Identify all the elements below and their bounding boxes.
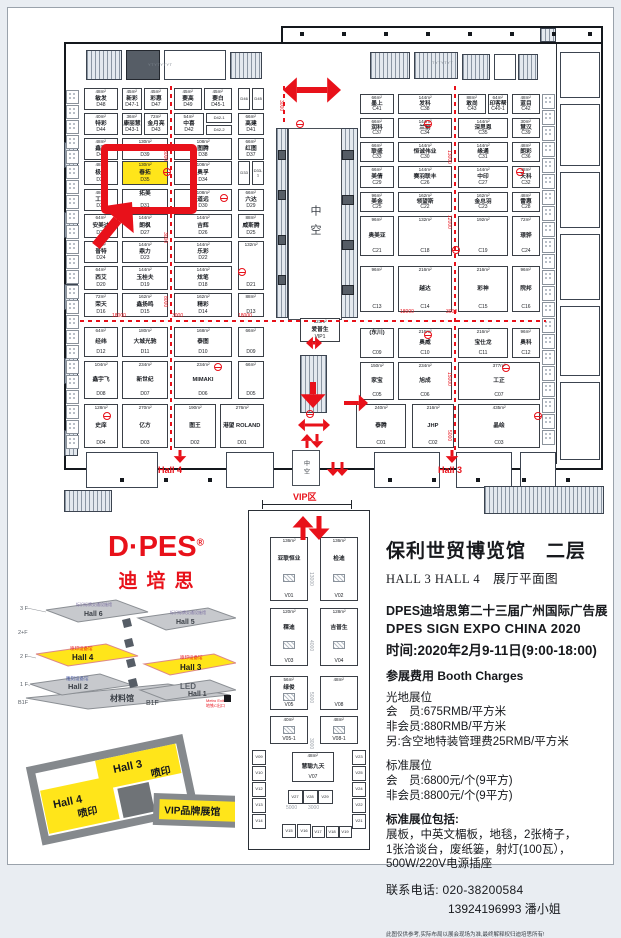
level-1f: 1 F <box>20 682 29 688</box>
hall2-sub: 雕刻设备馆 <box>66 675 89 682</box>
wall-booth-cell <box>66 180 79 194</box>
venue-title: 保利世贸博览馆 二层 <box>386 536 616 563</box>
wall-booth-cell <box>66 375 79 389</box>
atrium-void: 中空 <box>288 128 342 320</box>
dimension-label: 3000 <box>172 314 183 319</box>
booth-V15: V15 <box>282 824 296 838</box>
wall-booth-cell <box>66 300 79 314</box>
wall-booth-cell <box>542 286 555 301</box>
structural-column-dot <box>510 32 514 36</box>
structural-column-dot <box>468 32 472 36</box>
booth-C09: (东川)C09 <box>360 328 394 358</box>
booth-C35: 144m²深思恩C35 <box>458 118 508 138</box>
dimension-label: 5000 <box>286 806 297 811</box>
aisle-dashed-left <box>170 86 172 454</box>
structure-block <box>278 150 286 160</box>
aisle-dashed-right <box>454 86 456 454</box>
hall4-name: Hall 4 <box>72 653 94 662</box>
b1f-code: B1F <box>146 700 159 707</box>
structural-column-dot <box>388 478 392 482</box>
booth-C14: 216m²越达C14 <box>398 266 452 312</box>
dimension-label: 12000 <box>446 215 451 229</box>
structural-column-dot <box>300 32 304 36</box>
booth-C06: 234m²旭成C06 <box>398 362 452 400</box>
structure-block <box>494 54 516 80</box>
booth-V27: V27 <box>288 790 303 804</box>
booth-D12: 64m²经纬D12 <box>84 327 118 357</box>
structure-block <box>414 52 458 79</box>
vip-dimension-line <box>262 504 352 505</box>
booth-C13: 96m²C13 <box>360 266 394 312</box>
booth-D09: 66m²D09 <box>238 327 264 357</box>
wall-booth-cell <box>542 398 555 413</box>
booth-charges-title: 参展费用 Booth Charges <box>386 667 616 684</box>
booth-V05: 56m²绿俊V05 <box>270 676 308 710</box>
wall-booth-cell <box>66 270 79 284</box>
booth-C21: 96m²奥美亚C21 <box>360 216 394 256</box>
structural-column-dot <box>588 32 592 36</box>
wall-booth-cell <box>542 334 555 349</box>
structure-block <box>342 240 354 250</box>
dimension-label: 3000 <box>446 310 457 315</box>
booth-V29: V29 <box>318 790 333 804</box>
atrium-void-lower: 中空 <box>292 450 320 486</box>
booth-D11: 180m²大城光驰D11 <box>122 327 168 357</box>
booth-D43-1: 36m²康丽慧D43-1 <box>122 113 142 135</box>
structural-column-dot <box>384 32 388 36</box>
structural-column-dot <box>522 478 526 482</box>
structure-block <box>462 54 490 80</box>
wall-booth-cell <box>66 255 79 269</box>
wall-booth-cell <box>542 254 555 269</box>
booth-D45-1: 45m²要白D45-1 <box>204 88 232 110</box>
wall-booth-cell <box>542 94 555 109</box>
booth-D23: 144m²鼎力D23 <box>122 241 168 263</box>
structure-block <box>518 54 538 80</box>
fire-point-icon <box>516 168 524 176</box>
wall-booth-cell <box>66 420 79 434</box>
structure-block <box>342 195 354 205</box>
booth-D43: 72m²金月亮D43 <box>144 113 168 135</box>
booth-D41: 66m²高建D41 <box>238 113 264 135</box>
wall-booth-cell <box>542 414 555 429</box>
hall2-name: Hall 2 <box>68 682 88 691</box>
booth-D20: 64m²西艾D20 <box>84 266 118 290</box>
wall-booth-cell <box>542 238 555 253</box>
booth-V07: 48m²慧聪九天V07 <box>292 752 334 782</box>
structural-column-dot <box>476 478 480 482</box>
hall-subtitle: HALL 3 HALL 4 展厅平面图 <box>386 568 616 587</box>
structure-block <box>278 275 286 285</box>
structural-column-dot <box>432 478 436 482</box>
booth-D42-2: D42-2 <box>206 125 232 135</box>
raw-space-extra-fee: 另:含空地特装管理费25RMB/平方米 <box>386 735 616 750</box>
level-2plusf: 2+F <box>18 630 28 636</box>
hall1-led: LED <box>180 682 196 691</box>
structure-block <box>164 50 226 80</box>
structural-column-dot <box>208 478 212 482</box>
booth-D33-1: D33-1 <box>252 161 264 185</box>
expo-name-en: DPES SIGN EXPO CHINA 2020 <box>386 621 616 636</box>
fire-point-icon <box>306 410 314 418</box>
level-3f: 3 F <box>20 606 29 612</box>
standard-member-price: 会 员:6800元/个(9平方) <box>386 774 616 789</box>
disclaimer-footnote: 此图仅供参考,实际布局以展会现场为准,最终解释权归迪培思所有! <box>386 930 616 938</box>
wall-booth-cell <box>66 330 79 344</box>
metro-cube-icon <box>224 695 231 702</box>
booth-C29: 66m²美倩C29 <box>360 166 394 188</box>
aisle-dashed-horizontal <box>80 320 546 322</box>
wall-booth-cell <box>66 195 79 209</box>
booth-D47-1: 45m²新彩D47-1 <box>122 88 142 110</box>
expo-name-cn: DPES迪培思第二十三届广州国际广告展 <box>386 600 616 619</box>
wall-booth-cell <box>66 210 79 224</box>
wall-booth-cell <box>66 165 79 179</box>
structure-block <box>300 355 327 413</box>
wall-booth-cell <box>542 206 555 221</box>
right-corridor-wall <box>556 44 557 464</box>
booth-D46: D46 <box>238 88 250 110</box>
booth-V09: V09 <box>252 750 266 765</box>
fire-point-icon <box>424 120 432 128</box>
booth-D42-1: D42-1 <box>206 113 232 123</box>
wall-booth-cell <box>542 270 555 285</box>
wall-booth-cell <box>542 174 555 189</box>
raw-space-nonmember-price: 非会员:880RMB/平方米 <box>386 720 616 735</box>
booth-C31: 144m²缘通C31 <box>458 142 508 162</box>
dimension-label: 5000 <box>446 430 451 441</box>
brand-logo: D·PES® 迪培思 <box>86 531 226 593</box>
hall6-sub: 标识标牌交通设施馆 <box>76 601 112 607</box>
structure-block <box>230 52 262 79</box>
fire-point-icon <box>534 412 542 420</box>
wall-booth-cell <box>542 222 555 237</box>
dimension-label: 3000 <box>278 100 283 111</box>
booth-D01: 276m²港望 ROLANDD01 <box>220 404 264 448</box>
contact-phone: 联系电话: 020-38200584 <box>386 881 616 898</box>
booth-D45: D45 <box>252 88 264 110</box>
atrium-label: 中空 <box>307 205 323 243</box>
booth-D47: 45m²彩惠D47 <box>144 88 168 110</box>
booth-D02: 190m²图王D02 <box>174 404 216 448</box>
structure-block <box>560 104 600 166</box>
booth-C07: 377m²工正C07 <box>458 362 540 400</box>
hall4-sub: 喷印设备馆 <box>70 645 93 652</box>
fire-point-icon <box>452 246 460 254</box>
booth-C43: 88m²敢尚C43 <box>458 94 486 114</box>
booth-D48: 48m²敏发D48 <box>84 88 118 110</box>
info-panel: 保利世贸博览馆 二层 HALL 3 HALL 4 展厅平面图 DPES迪培思第二… <box>386 536 616 938</box>
booth-D42: 54m²中喜D42 <box>174 113 204 135</box>
wall-booth-cell <box>542 366 555 381</box>
booth-D06: 234m²MIMAKID06 <box>174 361 232 399</box>
booth-V24: V24 <box>352 782 366 797</box>
b1f-name: 材料馆 <box>110 693 134 703</box>
structural-column-dot <box>120 478 124 482</box>
booth-D08: 104m²鑫宇飞D08 <box>84 361 118 399</box>
booth-V05-1: 40m²V05-1 <box>270 716 308 744</box>
structural-column-dot <box>342 32 346 36</box>
booth-V14: V14 <box>252 814 266 829</box>
wall-booth-cell <box>542 110 555 125</box>
wall-booth-cell <box>66 90 79 104</box>
legend-3d-levels: 材料馆 B1F 雕刻设备馆 Hall 2 LED Hall 1 喷印设备馆 Ha… <box>18 592 236 712</box>
booth-D19: 144m²玉桂夫D19 <box>122 266 168 290</box>
booth-C25: 96m²美金C25 <box>360 192 394 212</box>
mini-map: VIP品牌展馆 Hall 3 喷印 Hall 4 喷印 <box>20 722 235 857</box>
wall-booth-cell <box>66 435 79 449</box>
hall3-name: Hall 3 <box>180 663 202 672</box>
booth-C38: 144m²发科C38 <box>398 94 452 114</box>
wall-booth-cell <box>542 126 555 141</box>
booth-V01: 136m²亚联恒业V01 <box>270 537 308 601</box>
booth-V28: V28 <box>303 790 318 804</box>
dimension-label: 15000 <box>446 372 451 386</box>
booth-C18: 132m²C18 <box>398 216 452 256</box>
fire-point-icon <box>502 364 510 372</box>
booth-D07: 234m²新世纪D07 <box>122 361 168 399</box>
booth-D18: 144m²炫笔D18 <box>174 266 232 290</box>
standard-booth-title: 标准展位 <box>386 759 616 774</box>
structure-block <box>560 234 600 300</box>
fire-point-icon <box>296 120 304 128</box>
dimension-label: 5000 <box>308 692 313 703</box>
booth-D28: 64m²安美达D28 <box>84 214 118 238</box>
booth-C41: 66m²墨上C41 <box>360 94 394 114</box>
atrium-lower-label: 中空 <box>302 460 311 476</box>
booth-C12: 96m²奥科C12 <box>512 328 540 358</box>
booth-V17: V17 <box>312 826 325 838</box>
booth-D10: 168m²泰图D10 <box>174 327 232 357</box>
structure-block <box>560 306 600 376</box>
booth-C24: 72m²璟骅C24 <box>512 216 540 256</box>
hall4-entrance-label: Hall 4 <box>158 466 182 475</box>
booth-C37: 66m²润科C37 <box>360 118 394 138</box>
hall5-sub: 标识标牌交通设施馆 <box>170 609 206 615</box>
booth-V08-1: 48m²V08-1 <box>320 716 358 744</box>
structure-block <box>86 50 122 80</box>
booth-C03: 435m²晶绘C03 <box>458 404 540 448</box>
structure-block <box>86 452 158 488</box>
fire-point-icon <box>220 194 228 202</box>
highlight-frame <box>101 144 197 214</box>
standard-includes-title: 标准展位包括: <box>386 813 616 828</box>
booth-C15: 216m²彩神C15 <box>458 266 508 312</box>
wall-booth-cell <box>66 405 79 419</box>
structure-block <box>484 486 604 514</box>
expo-datetime: 时间:2020年2月9-11日(9:00-18:00) <box>386 639 616 659</box>
booth-D44: 40m²特彩D44 <box>84 113 118 135</box>
booth-facility-icon <box>283 641 295 649</box>
structural-column-dot <box>552 32 556 36</box>
structure-block <box>560 382 600 460</box>
booth-D37: 66m²红图D37 <box>238 138 264 160</box>
wall-booth-cell <box>66 285 79 299</box>
booth-D03: 270m²亿方D03 <box>122 404 168 448</box>
booth-C23: 162m²金总羽C23 <box>458 192 508 212</box>
wall-booth-cell <box>542 302 555 317</box>
booth-V04: 128m²吉普生V04 <box>320 608 358 666</box>
dimension-label: 3000 <box>308 738 313 749</box>
booth-V19: V19 <box>339 826 352 838</box>
dimension-label: 18000 <box>112 314 126 319</box>
structure-block <box>456 452 512 488</box>
hall6-name: Hall 6 <box>84 611 103 618</box>
booth-facility-icon <box>333 574 345 582</box>
dimension-label: 8000 <box>162 296 167 307</box>
booth-C30: 144m²恒诚伟业C30 <box>398 142 452 162</box>
dimension-label: 4000 <box>308 640 313 651</box>
booth-facility-icon <box>283 574 295 582</box>
booth-C19: 192m²C19 <box>458 216 508 256</box>
level-2f: 2 F <box>20 654 29 660</box>
corridor-marking: TYTYTYT <box>432 60 453 65</box>
booth-C33: 66m²联盛C33 <box>360 142 394 162</box>
raw-space-title: 光地展位 <box>386 689 616 705</box>
wall-booth-cell <box>66 240 79 254</box>
booth-V18: V18 <box>326 826 339 838</box>
booth-V02: 136m²检迪V02 <box>320 537 358 601</box>
wall-booth-cell <box>66 120 79 134</box>
booth-V16: V16 <box>297 824 311 838</box>
standard-includes-3: 500W/220V电源插座 <box>386 857 616 872</box>
wall-booth-cell <box>66 360 79 374</box>
booth-C40-1: 64m²印客帮C40-1 <box>488 94 508 114</box>
booth-V10: V10 <box>252 766 266 781</box>
booth-V21: V21 <box>352 814 366 829</box>
scanned-floorplan-page: { "labels": { "hall4_entry": "Hall 4", "… <box>0 0 621 869</box>
vip-zone-label: VIP区 <box>293 493 317 502</box>
dimension-label: 3000 <box>308 806 319 811</box>
booth-D33: D33 <box>238 161 250 185</box>
booth-D22: 144m²乐彩D22 <box>174 241 232 263</box>
booth-facility-icon <box>333 726 345 734</box>
structure-block <box>560 52 600 98</box>
fire-point-icon <box>214 363 222 371</box>
booth-C27: 144m²中印C27 <box>458 166 508 188</box>
standard-nonmember-price: 非会员:8800元/个(9平方) <box>386 789 616 804</box>
corridor-marking: YTYTYTYT <box>148 62 172 67</box>
booth-V12: V12 <box>252 782 266 797</box>
wall-booth-cell <box>542 142 555 157</box>
structure-block <box>560 172 600 228</box>
wall-booth-cell <box>66 105 79 119</box>
booth-D04: 128m²史庠D04 <box>84 404 118 448</box>
booth-facility-icon <box>283 693 295 701</box>
wall-booth-cell <box>542 350 555 365</box>
structure-block <box>342 285 354 295</box>
booth-V03: 120m²稞迪V03 <box>270 608 308 666</box>
booth-D29: 66m²六达D29 <box>238 189 264 211</box>
booth-C16: 96m²院邦C16 <box>512 266 540 312</box>
wall-booth-cell <box>66 135 79 149</box>
booth-C36: 48m²朗彩C36 <box>512 142 540 162</box>
booth-C42: 48m²蓝目C42 <box>512 94 540 114</box>
registered-mark-icon: ® <box>197 537 204 548</box>
booth-V13: V13 <box>252 798 266 813</box>
dimension-label: 18000 <box>400 310 414 315</box>
wall-booth-cell <box>66 150 79 164</box>
structure-block <box>226 452 274 488</box>
structure-block <box>64 490 112 512</box>
structure-block <box>278 190 286 200</box>
dimension-label: 13000 <box>308 572 313 586</box>
contact-mobile: 13924196993 潘小姐 <box>448 900 616 917</box>
booth-D49: 45m²要高D49 <box>174 88 202 110</box>
booth-facility-icon <box>283 726 295 734</box>
structural-column-dot <box>164 478 168 482</box>
booth-C11: 216m²宝仕龙C11 <box>458 328 508 358</box>
structure-block <box>374 452 440 488</box>
booth-D26: 144m²吉辉D26 <box>174 214 232 238</box>
wall-booth-cell <box>66 225 79 239</box>
level-b1f: B1F <box>18 700 29 706</box>
hall3-entrance-label: Hall 3 <box>438 466 462 475</box>
booth-V08: 48m²V08 <box>320 676 358 710</box>
wall-booth-cell <box>66 390 79 404</box>
metro-exit-cn: 地铁C出口 <box>206 702 225 708</box>
booth-facility-icon <box>333 641 345 649</box>
booth-C05: 150m²家宝C05 <box>360 362 394 400</box>
wall-booth-cell <box>542 190 555 205</box>
fire-point-icon <box>424 331 432 339</box>
structural-column-dot <box>566 478 570 482</box>
booth-C39: 30m²慧汉C39 <box>512 118 540 138</box>
booth-C28: 48m²雷惠C28 <box>512 192 540 212</box>
wall-booth-cell <box>66 315 79 329</box>
raw-space-member-price: 会 员:675RMB/平方米 <box>386 705 616 720</box>
structure-block <box>370 52 410 79</box>
dimension-label: 13000 <box>446 150 451 164</box>
wall-booth-cell <box>542 382 555 397</box>
hall1-name: Hall 1 <box>188 691 207 698</box>
booth-C26: 144m²赛羽联丰C26 <box>398 166 452 188</box>
booth-C01: 240m²泰腾C01 <box>356 404 406 448</box>
vip-dim-tick-right <box>351 500 352 509</box>
standard-includes-1: 展板，中英文楣板，地毯，2张椅子， <box>386 828 616 843</box>
booth-D25: 88m²威斯腾D25 <box>238 214 264 238</box>
booth-V22: V22 <box>352 798 366 813</box>
brand-wordmark: D·PES® <box>86 531 226 564</box>
wall-booth-cell <box>66 345 79 359</box>
brand-chinese: 迪培思 <box>86 566 226 593</box>
booth-C02: 216m²JHPC02 <box>412 404 454 448</box>
dimension-label: 18000 <box>238 314 252 319</box>
booth-C22: 162m²领望斯C22 <box>398 192 452 212</box>
structure-block <box>278 235 286 245</box>
wall-booth-cell <box>542 430 555 445</box>
vip-dim-tick-left <box>262 500 263 509</box>
hall3-sub: 喷印设备馆 <box>180 654 203 661</box>
booth-D24: 64m²普特D24 <box>84 241 118 263</box>
booth-D21: 132m²D21 <box>238 241 264 290</box>
fire-point-icon <box>103 412 111 420</box>
wall-booth-cell <box>542 158 555 173</box>
booth-D05: 66m²D05 <box>238 361 264 399</box>
fire-point-icon <box>238 268 246 276</box>
booth-V25: V25 <box>352 766 366 781</box>
standard-includes-2: 1张洽谈台，废纸篓，射灯(100瓦）， <box>386 843 616 858</box>
hall5-name: Hall 5 <box>176 619 195 626</box>
structural-column-dot <box>426 32 430 36</box>
booth-V23: V23 <box>352 750 366 765</box>
structure-block <box>520 452 556 488</box>
structure-block <box>342 150 354 160</box>
dimension-label: 3000 <box>162 232 167 243</box>
